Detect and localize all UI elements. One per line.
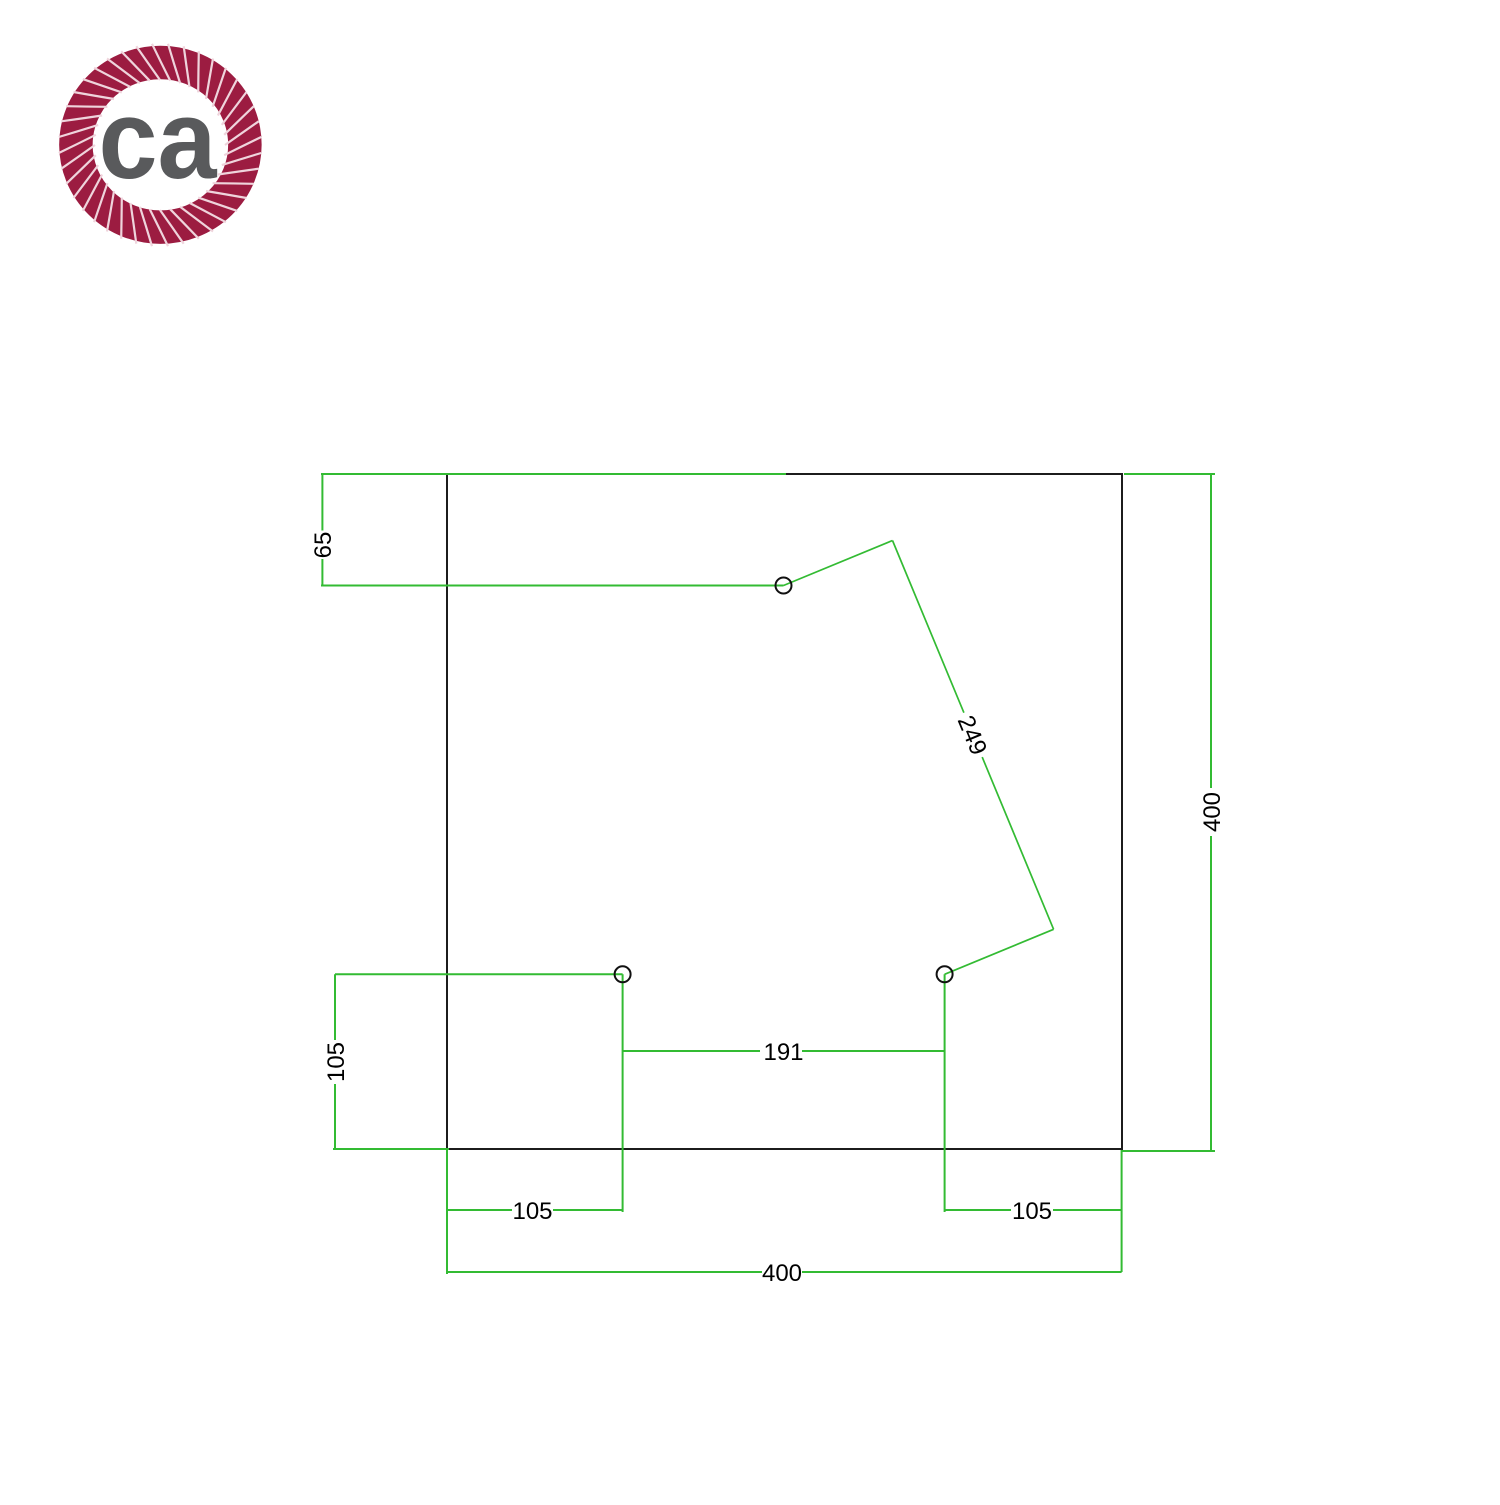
svg-text:65: 65 — [310, 532, 337, 559]
svg-text:105: 105 — [512, 1198, 552, 1225]
svg-text:105: 105 — [1012, 1198, 1052, 1225]
svg-text:191: 191 — [763, 1039, 803, 1066]
svg-text:400: 400 — [1199, 792, 1226, 832]
svg-text:400: 400 — [762, 1260, 802, 1287]
svg-text:ca: ca — [99, 77, 218, 202]
svg-text:105: 105 — [323, 1042, 350, 1082]
